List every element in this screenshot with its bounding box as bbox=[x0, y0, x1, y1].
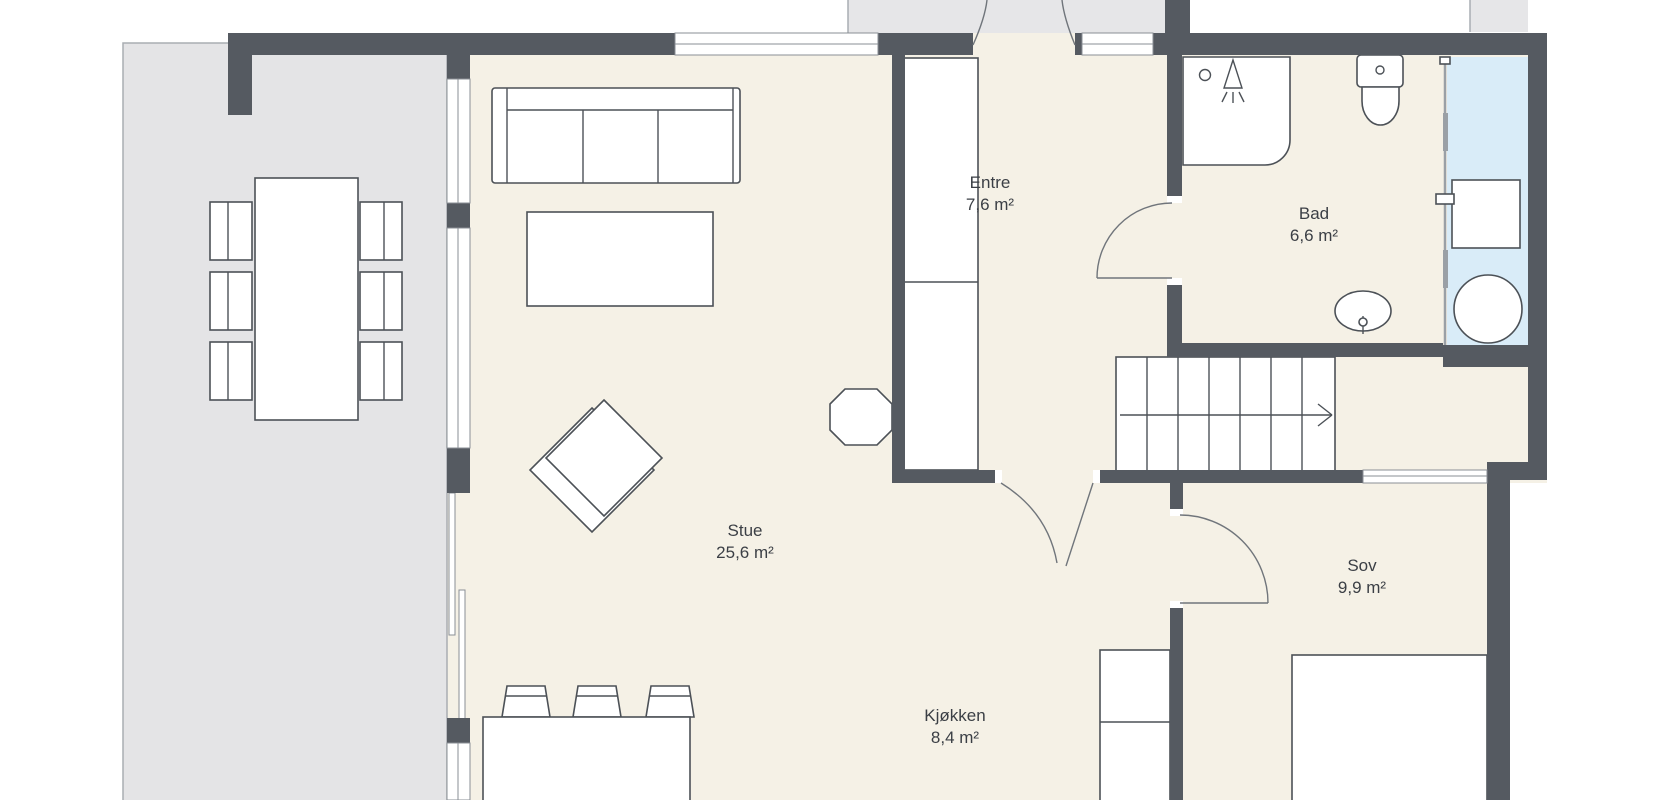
floor-plan: Stue 25,6 m² Kjøkken 8,4 m² Entre 7,6 m²… bbox=[0, 0, 1670, 800]
kitchen-counter bbox=[1100, 650, 1170, 800]
dining-table bbox=[255, 178, 358, 420]
room-name: Entre bbox=[966, 172, 1014, 194]
room-name: Stue bbox=[716, 520, 774, 542]
closet bbox=[903, 58, 978, 470]
floor-plan-drawing bbox=[0, 0, 1670, 800]
room-label-kjokken: Kjøkken 8,4 m² bbox=[924, 705, 985, 749]
bed bbox=[1292, 655, 1487, 800]
room-label-bad: Bad 6,6 m² bbox=[1290, 203, 1338, 247]
bar-stools bbox=[502, 686, 694, 717]
room-name: Bad bbox=[1290, 203, 1338, 225]
coffee-table bbox=[527, 212, 713, 306]
kitchen-island bbox=[483, 717, 690, 800]
room-name: Sov bbox=[1338, 555, 1386, 577]
room-area: 25,6 m² bbox=[716, 542, 774, 564]
sofa bbox=[492, 88, 740, 183]
shower bbox=[1183, 57, 1290, 165]
room-area: 7,6 m² bbox=[966, 194, 1014, 216]
room-label-sov: Sov 9,9 m² bbox=[1338, 555, 1386, 599]
terrace bbox=[123, 43, 447, 800]
room-area: 9,9 m² bbox=[1338, 577, 1386, 599]
partition-handle bbox=[1436, 194, 1454, 204]
room-area: 6,6 m² bbox=[1290, 225, 1338, 247]
room-label-stue: Stue 25,6 m² bbox=[716, 520, 774, 564]
room-label-entre: Entre 7,6 m² bbox=[966, 172, 1014, 216]
room-name: Kjøkken bbox=[924, 705, 985, 727]
stairs bbox=[1116, 357, 1335, 472]
room-area: 8,4 m² bbox=[924, 727, 985, 749]
